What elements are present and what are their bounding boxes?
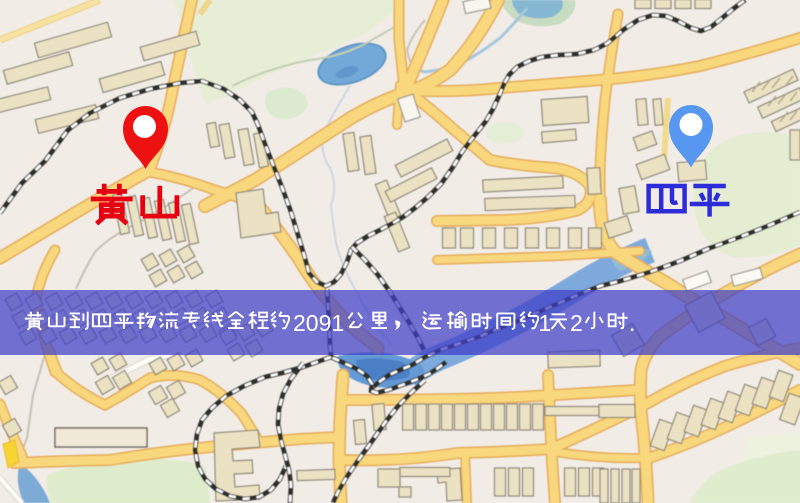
svg-text:2: 2 — [570, 310, 583, 336]
svg-text:1: 1 — [539, 310, 552, 336]
svg-text:.: . — [629, 310, 635, 336]
svg-text:2091: 2091 — [293, 310, 344, 336]
